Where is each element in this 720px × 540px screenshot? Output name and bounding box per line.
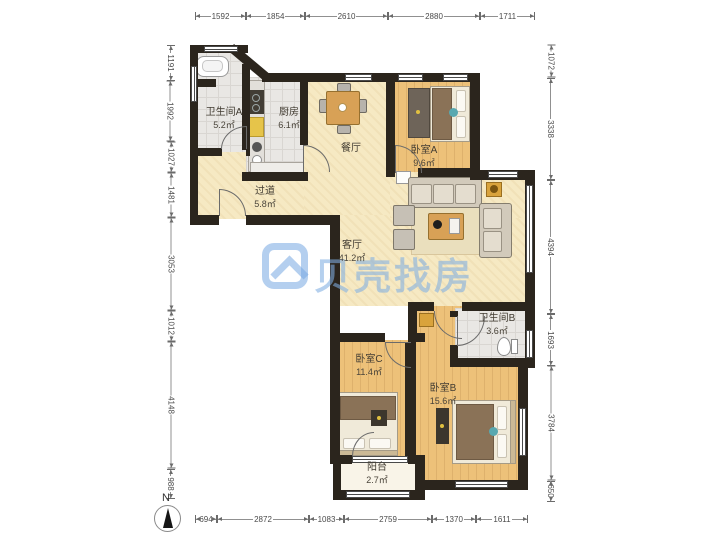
room-area: 5.8㎡ bbox=[254, 198, 276, 210]
room-area: 41.2㎡ bbox=[339, 252, 366, 264]
dimension-top: 1854 bbox=[246, 11, 305, 21]
room-name: 卧室C bbox=[355, 354, 382, 366]
room-name: 过道 bbox=[254, 186, 276, 198]
wall bbox=[470, 73, 480, 180]
wardrobe-knob bbox=[416, 110, 420, 114]
dimension-right: 3784 bbox=[547, 366, 557, 481]
dimension-left: 1481 bbox=[167, 173, 177, 218]
room-name: 厨房 bbox=[278, 107, 300, 119]
sofa-cushion bbox=[411, 184, 432, 204]
window bbox=[455, 481, 508, 488]
window bbox=[443, 74, 468, 81]
half-wall bbox=[196, 79, 216, 87]
dimension-top: 2880 bbox=[388, 11, 480, 21]
room-area: 15.6㎡ bbox=[430, 395, 457, 407]
dimension-top: 2610 bbox=[305, 11, 388, 21]
pillow bbox=[497, 434, 507, 458]
window bbox=[191, 66, 197, 102]
sofa-cushion bbox=[455, 184, 476, 204]
room-area: 11.4㎡ bbox=[355, 366, 382, 378]
room-label-living: 客厅 41.2㎡ bbox=[339, 240, 366, 264]
decor-teal bbox=[449, 108, 458, 117]
wall bbox=[418, 168, 480, 177]
compass-needle-icon bbox=[163, 508, 173, 528]
room-label-hallway: 过道 5.8㎡ bbox=[254, 186, 276, 210]
wall bbox=[190, 215, 219, 225]
wall bbox=[242, 172, 308, 181]
dimension-left: 4148 bbox=[167, 342, 177, 469]
toilet-tank bbox=[511, 339, 518, 354]
dimension-bottom: 1370 bbox=[432, 514, 476, 524]
pillow bbox=[497, 406, 507, 430]
gold-cabinet bbox=[419, 313, 434, 327]
bathtub-inner bbox=[202, 60, 223, 72]
room-name: 卫生间B bbox=[479, 313, 516, 325]
room-label-bedroom-b: 卧室B 15.6㎡ bbox=[430, 383, 457, 407]
beike-chevron-icon bbox=[270, 255, 308, 293]
room-label-balcony: 阳台 2.7㎡ bbox=[366, 462, 388, 486]
room-name: 卧室B bbox=[430, 383, 457, 395]
compass-north-label: N bbox=[162, 492, 170, 504]
window bbox=[526, 330, 533, 358]
bed-blanket bbox=[340, 396, 396, 420]
window bbox=[526, 185, 533, 273]
tray bbox=[449, 218, 460, 234]
wall bbox=[246, 215, 340, 225]
room-area: 3.6㎡ bbox=[479, 325, 516, 337]
room-area: 9.6㎡ bbox=[411, 157, 438, 169]
chaise-cushion bbox=[483, 231, 502, 252]
dimension-right: 1693 bbox=[546, 314, 556, 366]
room-label-bathroom-a: 卫生间A 5.2㎡ bbox=[206, 107, 243, 131]
dining-chair bbox=[337, 125, 351, 134]
wall bbox=[411, 333, 425, 342]
room-label-bedroom-a: 卧室A 9.6㎡ bbox=[411, 145, 438, 169]
wall bbox=[330, 333, 385, 342]
dimension-right: 3338 bbox=[546, 78, 556, 180]
dimension-bottom: 1611 bbox=[476, 514, 528, 524]
room-name: 阳台 bbox=[366, 462, 388, 474]
kettle bbox=[433, 220, 442, 229]
wall bbox=[415, 455, 425, 490]
wall bbox=[300, 73, 308, 145]
dimension-top: 1711 bbox=[480, 11, 535, 21]
bed-headboard bbox=[510, 400, 516, 464]
kitchen-cabinet-yellow bbox=[249, 117, 264, 137]
gold-side-table-plant bbox=[490, 185, 498, 193]
window bbox=[345, 74, 372, 81]
room-name: 卫生间A bbox=[206, 107, 243, 119]
room-label-dining: 餐厅 bbox=[341, 143, 361, 155]
room-area: 2.7㎡ bbox=[366, 474, 388, 486]
window bbox=[519, 408, 526, 456]
room-area: 6.1㎡ bbox=[278, 119, 300, 131]
dimension-bottom: 1083 bbox=[309, 514, 344, 524]
floorplan-canvas: 贝壳找房 卫生间A 5.2㎡ 厨房 6.1㎡ 餐厅 卧室A 9.6㎡ 过道 5.… bbox=[0, 0, 720, 540]
window bbox=[488, 171, 518, 178]
wall bbox=[386, 168, 395, 177]
room-area: 5.2㎡ bbox=[206, 119, 243, 131]
window bbox=[398, 74, 423, 81]
room-name: 客厅 bbox=[339, 240, 366, 252]
armchair bbox=[393, 205, 415, 226]
dining-plate bbox=[338, 103, 347, 112]
wall bbox=[246, 148, 250, 156]
stove-burner bbox=[252, 104, 260, 112]
stove-burner bbox=[252, 94, 260, 102]
pillow bbox=[456, 90, 466, 112]
room-name: 餐厅 bbox=[341, 143, 361, 155]
dimension-left: 1191 bbox=[166, 45, 176, 81]
window bbox=[204, 46, 238, 52]
tv-dot bbox=[377, 416, 381, 420]
dimension-left: 3053 bbox=[167, 218, 177, 311]
wall bbox=[386, 73, 395, 168]
room-label-bedroom-c: 卧室C 11.4㎡ bbox=[355, 354, 382, 378]
wall bbox=[450, 358, 535, 367]
dimension-right: 1072 bbox=[547, 45, 557, 78]
dimension-bottom: 2872 bbox=[217, 514, 309, 524]
decor-teal bbox=[489, 427, 498, 436]
sink-bowl bbox=[252, 142, 262, 152]
dimension-left: 1012 bbox=[167, 311, 177, 342]
chaise-cushion bbox=[483, 208, 502, 229]
beike-logo-watermark bbox=[262, 243, 308, 289]
window bbox=[346, 491, 410, 498]
room-name: 卧室A bbox=[411, 145, 438, 157]
dimension-bottom: 694 bbox=[195, 514, 217, 524]
dimension-left: 1992 bbox=[166, 81, 176, 142]
sofa-cushion bbox=[433, 184, 454, 204]
dimension-left: 1027 bbox=[167, 142, 177, 173]
dimension-right: 650 bbox=[546, 481, 556, 501]
toilet-bowl bbox=[497, 337, 511, 356]
wall bbox=[190, 148, 222, 156]
tv-dot bbox=[440, 424, 444, 428]
dimension-right: 4394 bbox=[546, 180, 556, 314]
room-label-bathroom-b: 卫生间B 3.6㎡ bbox=[479, 313, 516, 337]
room-label-kitchen: 厨房 6.1㎡ bbox=[278, 107, 300, 131]
dimension-bottom: 2759 bbox=[344, 514, 432, 524]
pillow bbox=[456, 116, 466, 138]
dimension-top: 1592 bbox=[195, 11, 246, 21]
